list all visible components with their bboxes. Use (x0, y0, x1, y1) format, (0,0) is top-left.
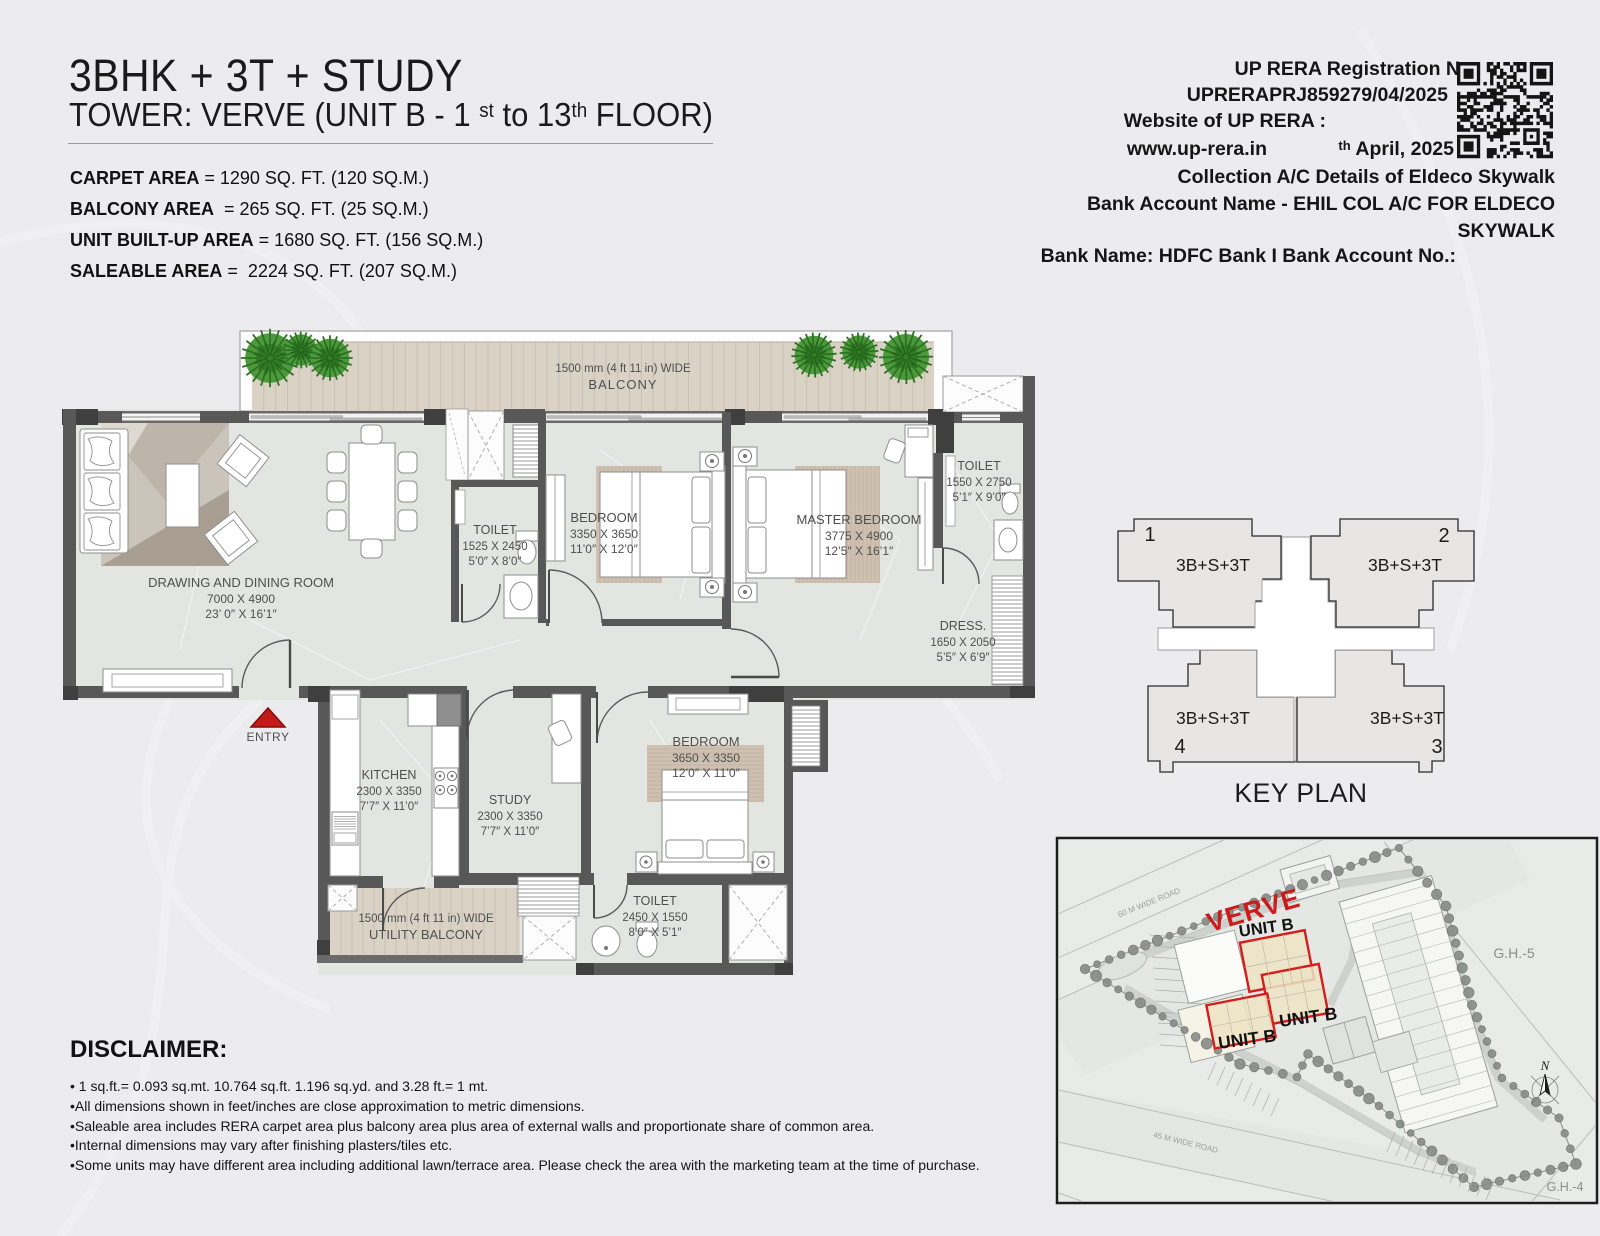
svg-text:ENTRY: ENTRY (247, 730, 290, 744)
svg-text:5’0″ X 8’0″: 5’0″ X 8’0″ (469, 556, 522, 568)
svg-text:1525 X 2450: 1525 X 2450 (462, 541, 527, 553)
svg-text:1: 1 (1144, 524, 1155, 546)
svg-text:TOILET: TOILET (633, 894, 677, 908)
svg-text:2300 X 3350: 2300 X 3350 (477, 811, 542, 823)
svg-text:5’5″ X 6’9″: 5’5″ X 6’9″ (937, 652, 990, 664)
svg-text:23’ 0″ X 16’1″: 23’ 0″ X 16’1″ (205, 607, 277, 621)
svg-text:TOILET: TOILET (957, 459, 1001, 473)
svg-text:1500 mm (4 ft 11 in) WIDE: 1500 mm (4 ft 11 in) WIDE (555, 363, 691, 375)
svg-text:1650 X 2050: 1650 X 2050 (930, 637, 995, 649)
svg-text:STUDY: STUDY (489, 793, 532, 807)
svg-text:12’0″ X 11’0″: 12’0″ X 11’0″ (672, 766, 740, 780)
svg-text:2: 2 (1438, 525, 1449, 547)
svg-text:1500 mm (4 ft 11 in) WIDE: 1500 mm (4 ft 11 in) WIDE (358, 913, 494, 925)
svg-text:12’5″ X 16’1″: 12’5″ X 16’1″ (825, 544, 894, 558)
svg-text:BEDROOM: BEDROOM (570, 510, 637, 525)
svg-text:DRESS.: DRESS. (940, 619, 987, 633)
svg-text:KITCHEN: KITCHEN (362, 768, 417, 782)
svg-text:1550 X 2750: 1550 X 2750 (946, 477, 1011, 489)
svg-text:3350 X 3650: 3350 X 3650 (570, 527, 638, 541)
svg-text:G.H.-5: G.H.-5 (1493, 945, 1534, 961)
svg-text:3650 X 3350: 3650 X 3350 (672, 751, 740, 765)
svg-text:BEDROOM: BEDROOM (672, 734, 739, 749)
svg-text:3B+S+3T: 3B+S+3T (1176, 555, 1250, 575)
svg-text:3B+S+3T: 3B+S+3T (1368, 555, 1442, 575)
svg-text:2450 X 1550: 2450 X 1550 (622, 912, 687, 924)
svg-text:5’1″ X 9’0″: 5’1″ X 9’0″ (953, 492, 1006, 504)
svg-text:3: 3 (1431, 736, 1442, 758)
svg-text:DRAWING AND DINING ROOM: DRAWING AND DINING ROOM (148, 575, 334, 590)
svg-text:4: 4 (1174, 736, 1185, 758)
svg-text:UTILITY BALCONY: UTILITY BALCONY (369, 927, 483, 942)
svg-text:7000 X 4900: 7000 X 4900 (207, 592, 275, 606)
svg-text:TOILET: TOILET (473, 523, 517, 537)
svg-text:N: N (1540, 1058, 1551, 1073)
svg-text:8’0″ X 5’1″: 8’0″ X 5’1″ (629, 927, 682, 939)
svg-text:11’0″ X 12’0″: 11’0″ X 12’0″ (570, 542, 638, 556)
svg-text:7’7″ X 11’0″: 7’7″ X 11’0″ (360, 801, 418, 813)
svg-text:MASTER BEDROOM: MASTER BEDROOM (797, 512, 922, 527)
svg-text:7’7″ X 11’0″: 7’7″ X 11’0″ (481, 826, 539, 838)
svg-text:BALCONY: BALCONY (588, 377, 657, 392)
svg-text:3775 X 4900: 3775 X 4900 (825, 529, 893, 543)
svg-text:3B+S+3T: 3B+S+3T (1176, 708, 1250, 728)
svg-text:3B+S+3T: 3B+S+3T (1370, 708, 1444, 728)
svg-text:KEY PLAN: KEY PLAN (1234, 778, 1367, 808)
svg-text:2300 X 3350: 2300 X 3350 (356, 786, 421, 798)
svg-text:G.H.-4: G.H.-4 (1547, 1180, 1584, 1194)
